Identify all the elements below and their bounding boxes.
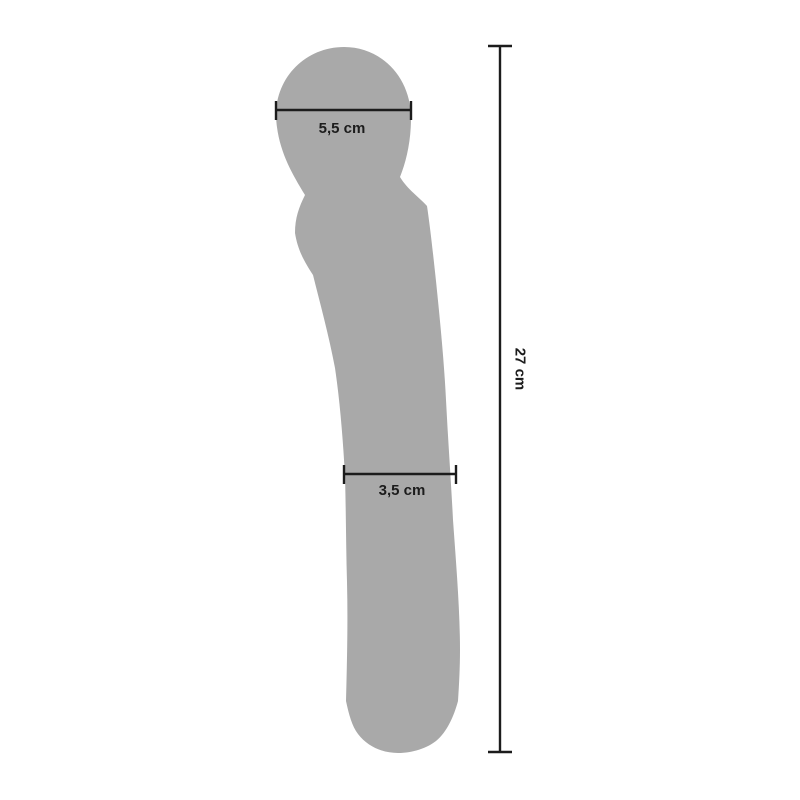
- shaft-width-label: 3,5 cm: [379, 482, 426, 499]
- total-length-label: 27 cm: [512, 348, 529, 391]
- dimension-diagram: 5,5 cm 3,5 cm 27 cm: [0, 0, 800, 800]
- head-width-label: 5,5 cm: [319, 120, 366, 137]
- product-silhouette: [276, 47, 460, 753]
- total-length-dimension: 27 cm: [488, 46, 529, 752]
